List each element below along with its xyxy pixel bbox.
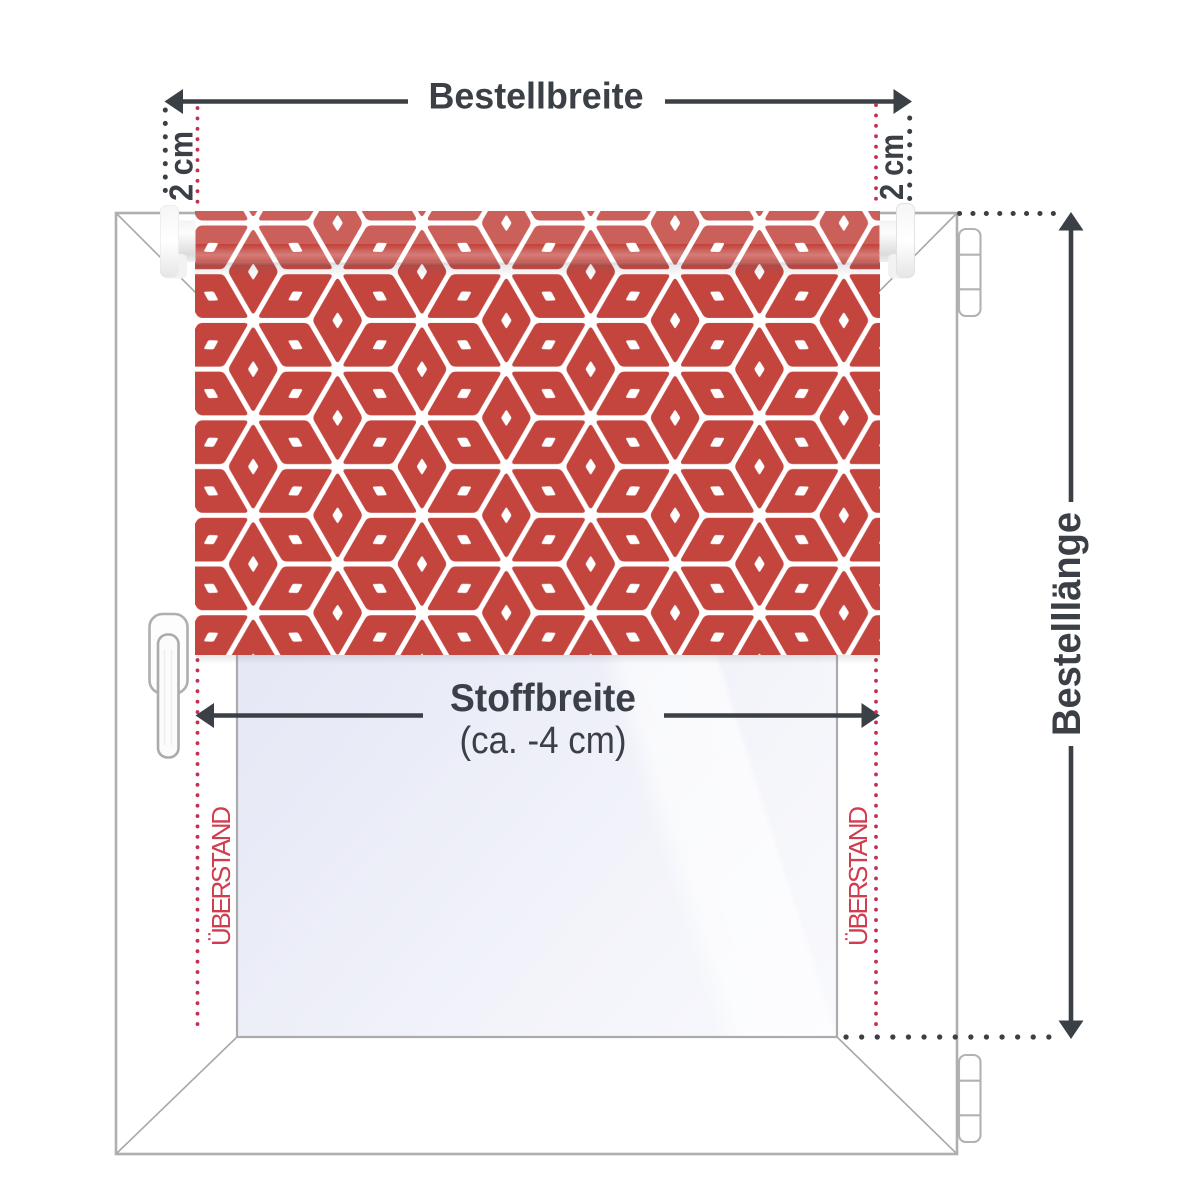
- svg-text:ÜBERSTAND: ÜBERSTAND: [206, 806, 236, 946]
- svg-text:(ca. -4 cm): (ca. -4 cm): [460, 720, 627, 762]
- svg-text:Bestellbreite: Bestellbreite: [429, 76, 644, 117]
- svg-text:Bestelllänge: Bestelllänge: [1045, 512, 1089, 736]
- svg-text:2 cm: 2 cm: [163, 131, 200, 201]
- svg-text:Stoffbreite: Stoffbreite: [450, 677, 636, 720]
- svg-text:2 cm: 2 cm: [873, 134, 910, 200]
- svg-text:ÜBERSTAND: ÜBERSTAND: [843, 806, 873, 946]
